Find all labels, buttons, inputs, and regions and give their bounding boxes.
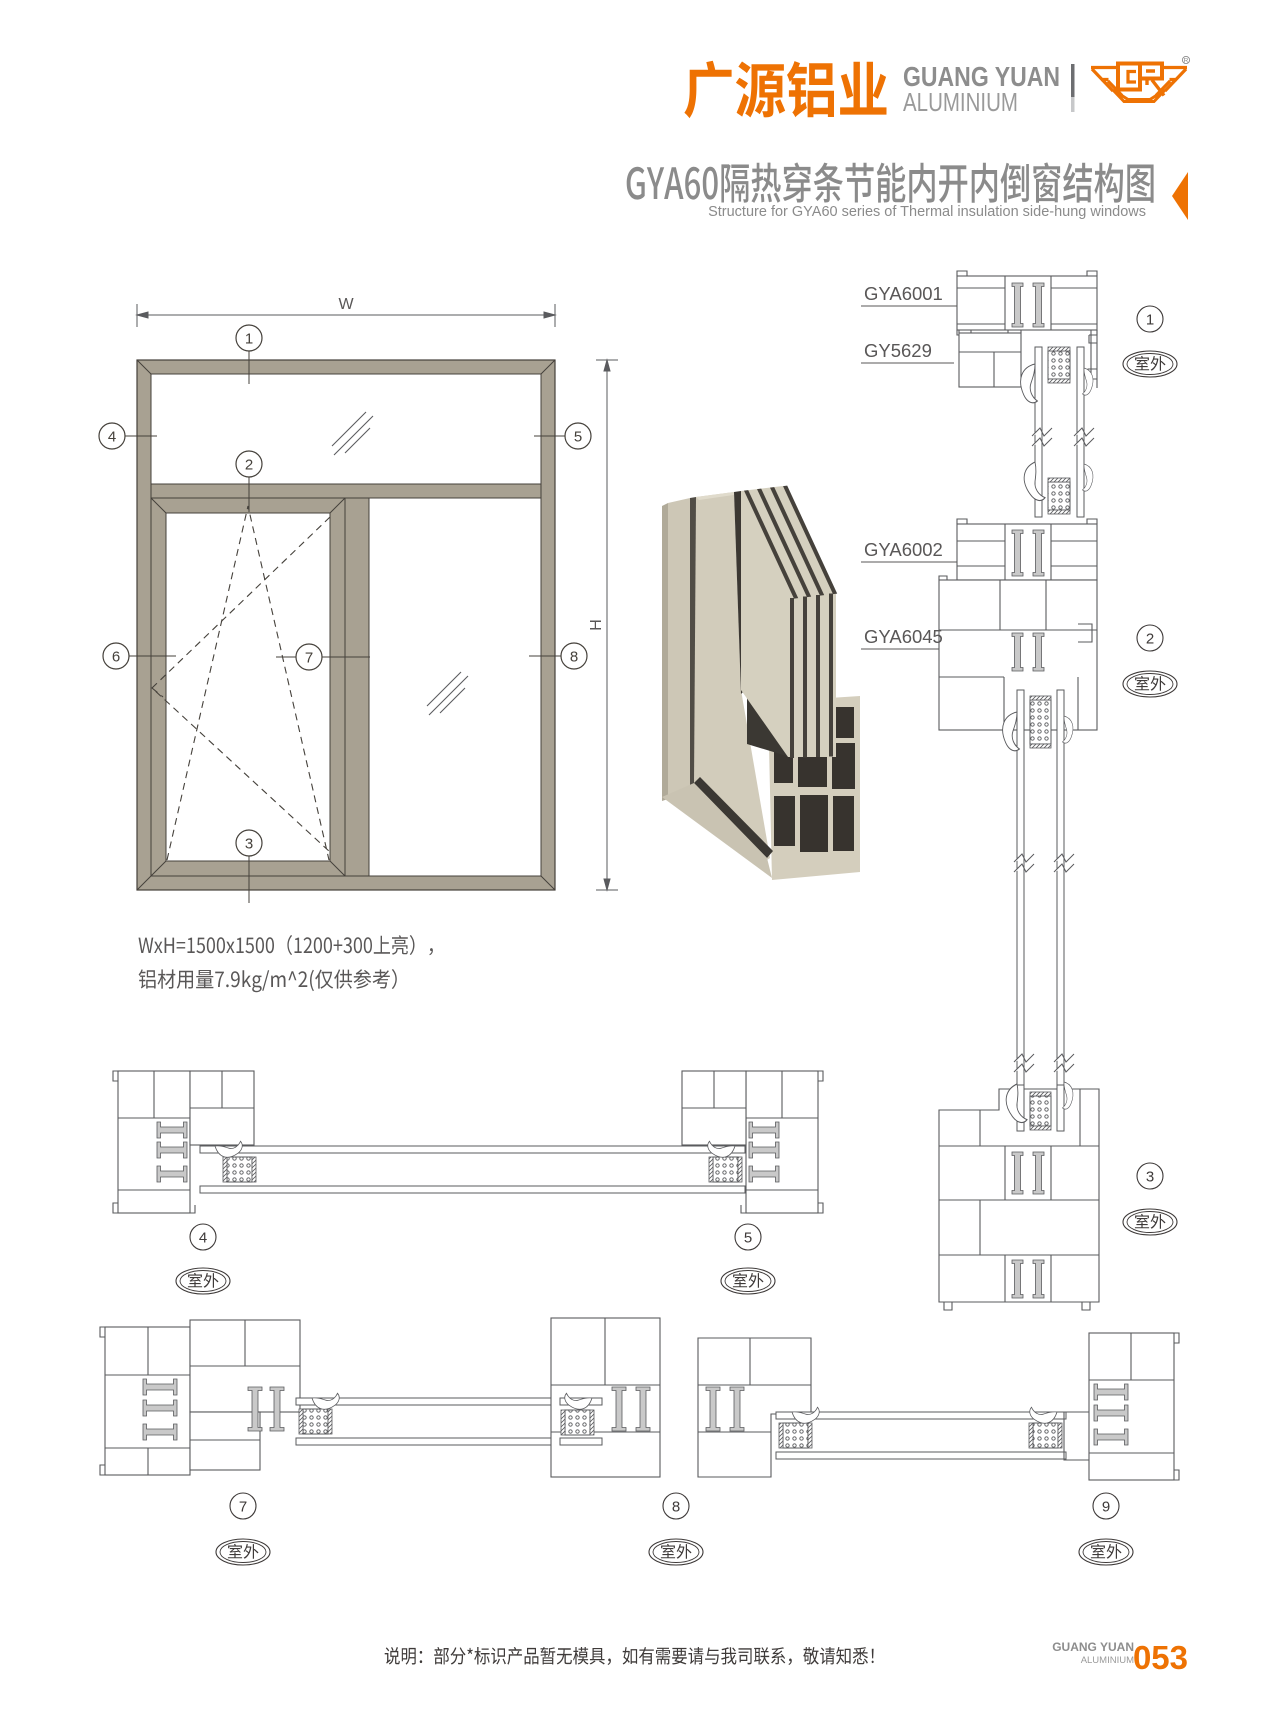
svg-text:1: 1 bbox=[245, 331, 253, 348]
svg-text:6: 6 bbox=[112, 649, 120, 666]
svg-text:9: 9 bbox=[1102, 1499, 1110, 1516]
svg-text:3: 3 bbox=[245, 836, 253, 853]
svg-text:W: W bbox=[338, 296, 354, 313]
svg-text:2: 2 bbox=[1146, 631, 1154, 648]
svg-text:4: 4 bbox=[199, 1230, 207, 1247]
svg-text:2: 2 bbox=[245, 457, 253, 474]
svg-text:8: 8 bbox=[570, 649, 578, 666]
svg-text:5: 5 bbox=[574, 429, 582, 446]
svg-text:3: 3 bbox=[1146, 1169, 1154, 1186]
svg-text:ALUMINIUM: ALUMINIUM bbox=[1081, 1655, 1134, 1666]
svg-text:GYA6001: GYA6001 bbox=[864, 283, 943, 304]
svg-text:GYA6045: GYA6045 bbox=[864, 626, 943, 647]
svg-text:Structure for GYA60 series of: Structure for GYA60 series of Thermal in… bbox=[708, 204, 1146, 220]
svg-text:ALUMINIUM: ALUMINIUM bbox=[903, 87, 1018, 117]
svg-text:GUANG YUAN: GUANG YUAN bbox=[1052, 1640, 1134, 1654]
svg-text:H: H bbox=[588, 619, 605, 631]
svg-text:7: 7 bbox=[239, 1499, 247, 1516]
svg-text:053: 053 bbox=[1133, 1639, 1188, 1676]
svg-text:4: 4 bbox=[108, 429, 116, 446]
svg-text:1: 1 bbox=[1146, 312, 1154, 329]
svg-text:8: 8 bbox=[672, 1499, 680, 1516]
svg-text:5: 5 bbox=[744, 1230, 752, 1247]
svg-text:7: 7 bbox=[305, 650, 313, 667]
svg-text:R: R bbox=[1184, 58, 1189, 65]
svg-text:GYA6002: GYA6002 bbox=[864, 539, 943, 560]
svg-text:GY5629: GY5629 bbox=[864, 340, 932, 361]
